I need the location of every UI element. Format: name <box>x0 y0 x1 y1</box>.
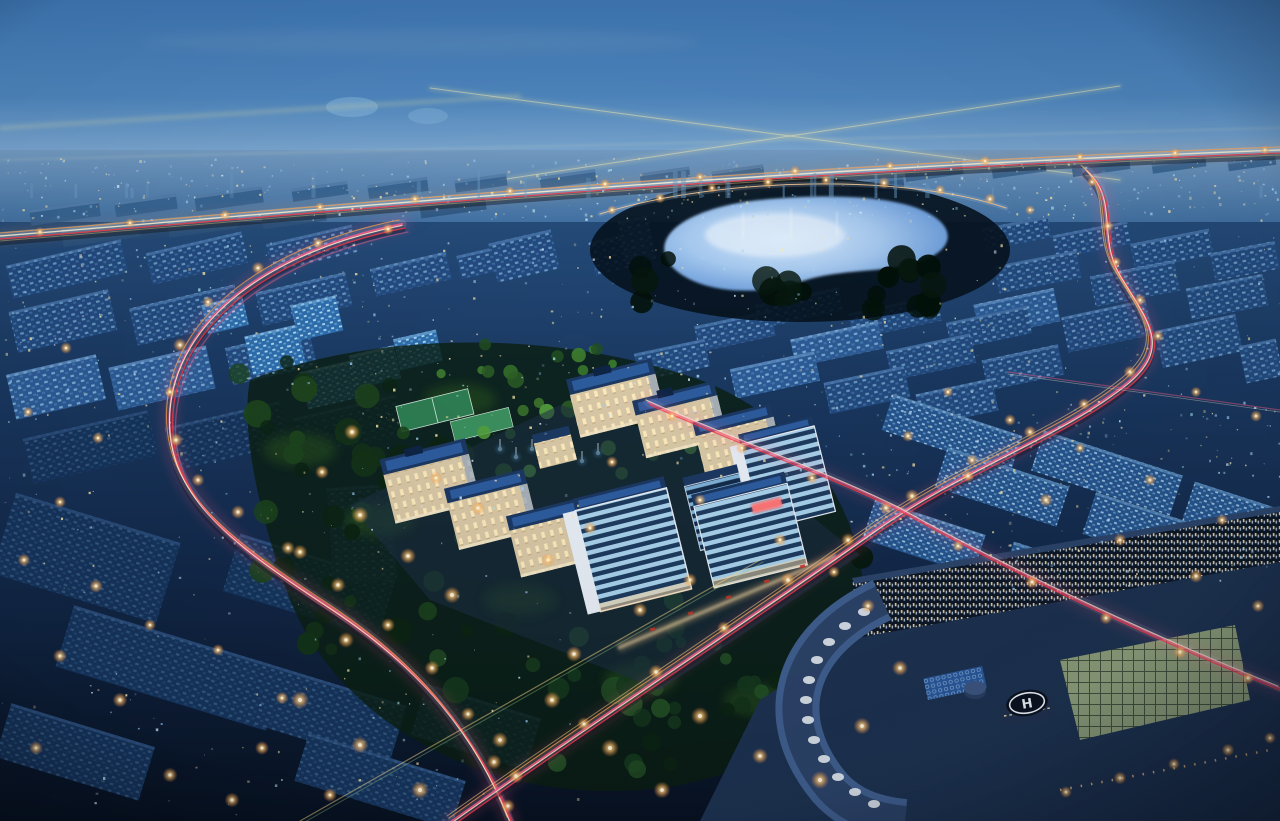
city-night-render: H <box>0 0 1280 821</box>
scene-svg: H <box>0 0 1280 821</box>
vignette <box>0 0 1280 821</box>
